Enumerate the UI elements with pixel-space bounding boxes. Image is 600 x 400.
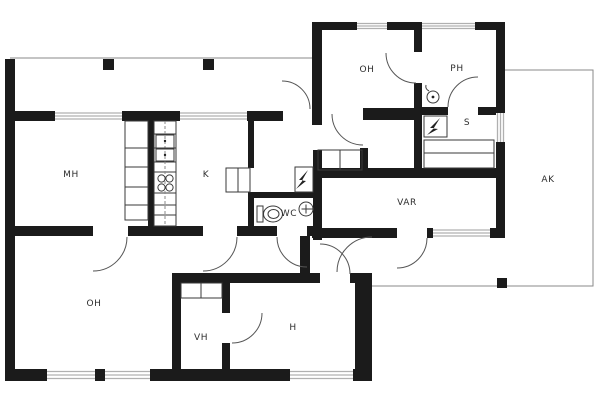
sauna-heater-icon <box>424 116 447 137</box>
oh-upper-door-arc <box>332 114 363 145</box>
closet-cells <box>226 168 250 192</box>
terrace-post <box>497 278 507 288</box>
window-ph <box>422 24 475 29</box>
vh-closet <box>181 283 222 298</box>
room-label-mh: MH <box>63 170 79 180</box>
window-oh-upper <box>357 24 387 29</box>
room-label-k: K <box>203 170 210 180</box>
window-var <box>433 230 490 236</box>
room-labels: MH K OH PH S AK VAR WC OH VH H <box>63 64 555 343</box>
porch-post <box>203 59 214 70</box>
window-mh <box>55 113 122 119</box>
room-label-vh: VH <box>194 333 208 343</box>
toilet-icon <box>257 206 283 222</box>
kitchen-counter <box>154 121 176 226</box>
porch-post <box>103 59 114 70</box>
window-sauna <box>498 113 504 142</box>
floorplan-drawing: MH K OH PH S AK VAR WC OH VH H <box>0 0 600 400</box>
room-label-ak: AK <box>541 175 555 185</box>
window-k <box>180 113 247 119</box>
sauna-bench-icon <box>424 140 494 168</box>
window-oh-lower-1 <box>47 372 95 379</box>
mh-door-arc <box>93 237 127 271</box>
windows <box>47 24 504 379</box>
sink-icon <box>299 202 314 216</box>
wardrobe-icon <box>125 121 148 220</box>
hall-closet <box>318 150 362 170</box>
window-oh-lower-2 <box>105 372 150 379</box>
floorplan-canvas: MH K OH PH S AK VAR WC OH VH H <box>0 0 600 400</box>
room-label-var: VAR <box>397 198 417 208</box>
var-door-arc <box>397 238 427 268</box>
shower-icon <box>426 85 439 103</box>
room-label-h: H <box>289 323 296 333</box>
room-label-ph: PH <box>450 64 463 74</box>
room-label-wc: WC <box>281 209 297 219</box>
ph-door-arc <box>386 53 416 83</box>
room-label-oh-upper: OH <box>359 65 374 75</box>
k-door-arc <box>203 237 237 271</box>
room-label-s: S <box>464 118 470 128</box>
vh-door-arc <box>232 313 262 343</box>
entry-door-arc <box>282 81 310 109</box>
room-label-oh-lower: OH <box>86 299 101 309</box>
electrical-panel-icon <box>295 167 313 192</box>
walls <box>5 22 505 381</box>
sauna-door-arc <box>448 77 478 107</box>
window-h <box>290 372 353 379</box>
